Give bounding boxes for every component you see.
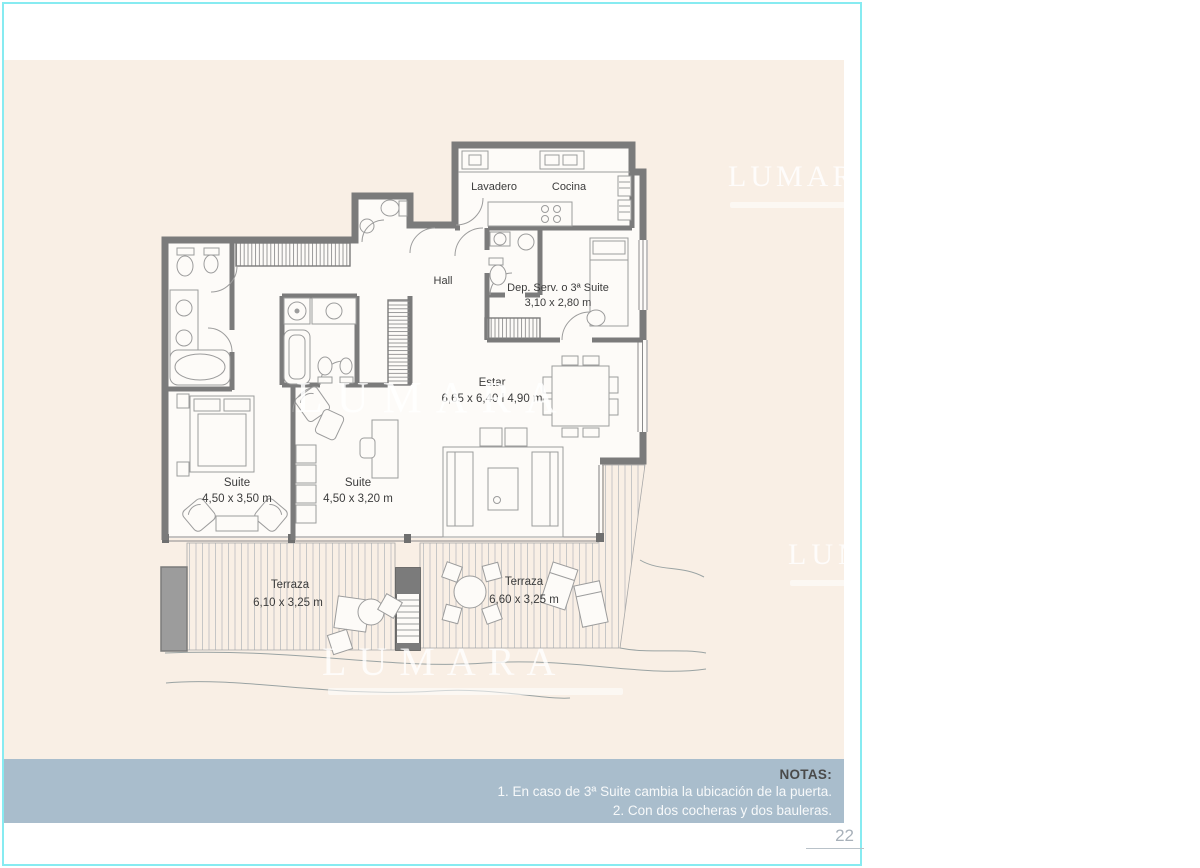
terrace-planter <box>161 567 187 651</box>
label-cocina: Cocina <box>552 181 587 193</box>
dims-terraza1: 6,10 x 3,25 m <box>253 597 323 609</box>
notes-item-2: 2. Con dos cocheras y dos bauleras. <box>4 801 832 820</box>
dims-dep-serv: 3,10 x 2,80 m <box>525 297 592 309</box>
watermark-bottom-subtitle <box>328 688 623 695</box>
dims-suite2: 4,50 x 3,20 m <box>323 493 393 505</box>
label-suite1: Suite <box>224 477 250 489</box>
notes-item-1: 1. En caso de 3ª Suite cambia la ubicaci… <box>4 782 832 801</box>
dims-suite1: 4,50 x 3,50 m <box>202 493 272 505</box>
watermark-right-subtitle <box>790 580 844 586</box>
brochure-page: Lavadero Cocina Hall Dep. Serv. o 3ª Sui… <box>0 0 1200 868</box>
page-number-rule <box>806 848 864 849</box>
page-number: 22 <box>800 826 854 846</box>
label-dep-serv: Dep. Serv. o 3ª Suite <box>507 282 609 294</box>
notes-title: NOTAS: <box>4 767 832 782</box>
label-suite2: Suite <box>345 477 371 489</box>
label-terraza2: Terraza <box>505 576 544 588</box>
label-lavadero: Lavadero <box>471 181 517 193</box>
plan-canvas: Lavadero Cocina Hall Dep. Serv. o 3ª Sui… <box>4 60 844 759</box>
watermark-right: LUMARA <box>788 538 844 572</box>
watermark-top-right-subtitle <box>730 202 844 208</box>
watermark-top-right: LUMARA <box>728 160 844 194</box>
floor-plan: Lavadero Cocina Hall Dep. Serv. o 3ª Sui… <box>150 133 720 713</box>
watermark-bottom: LUMARA <box>322 638 567 685</box>
label-hall: Hall <box>434 275 453 287</box>
watermark-center: LUMARA <box>296 372 571 423</box>
dims-terraza2: 6,60 x 3,25 m <box>489 594 559 606</box>
label-terraza1: Terraza <box>271 579 310 591</box>
notes-band: NOTAS: 1. En caso de 3ª Suite cambia la … <box>4 759 844 823</box>
